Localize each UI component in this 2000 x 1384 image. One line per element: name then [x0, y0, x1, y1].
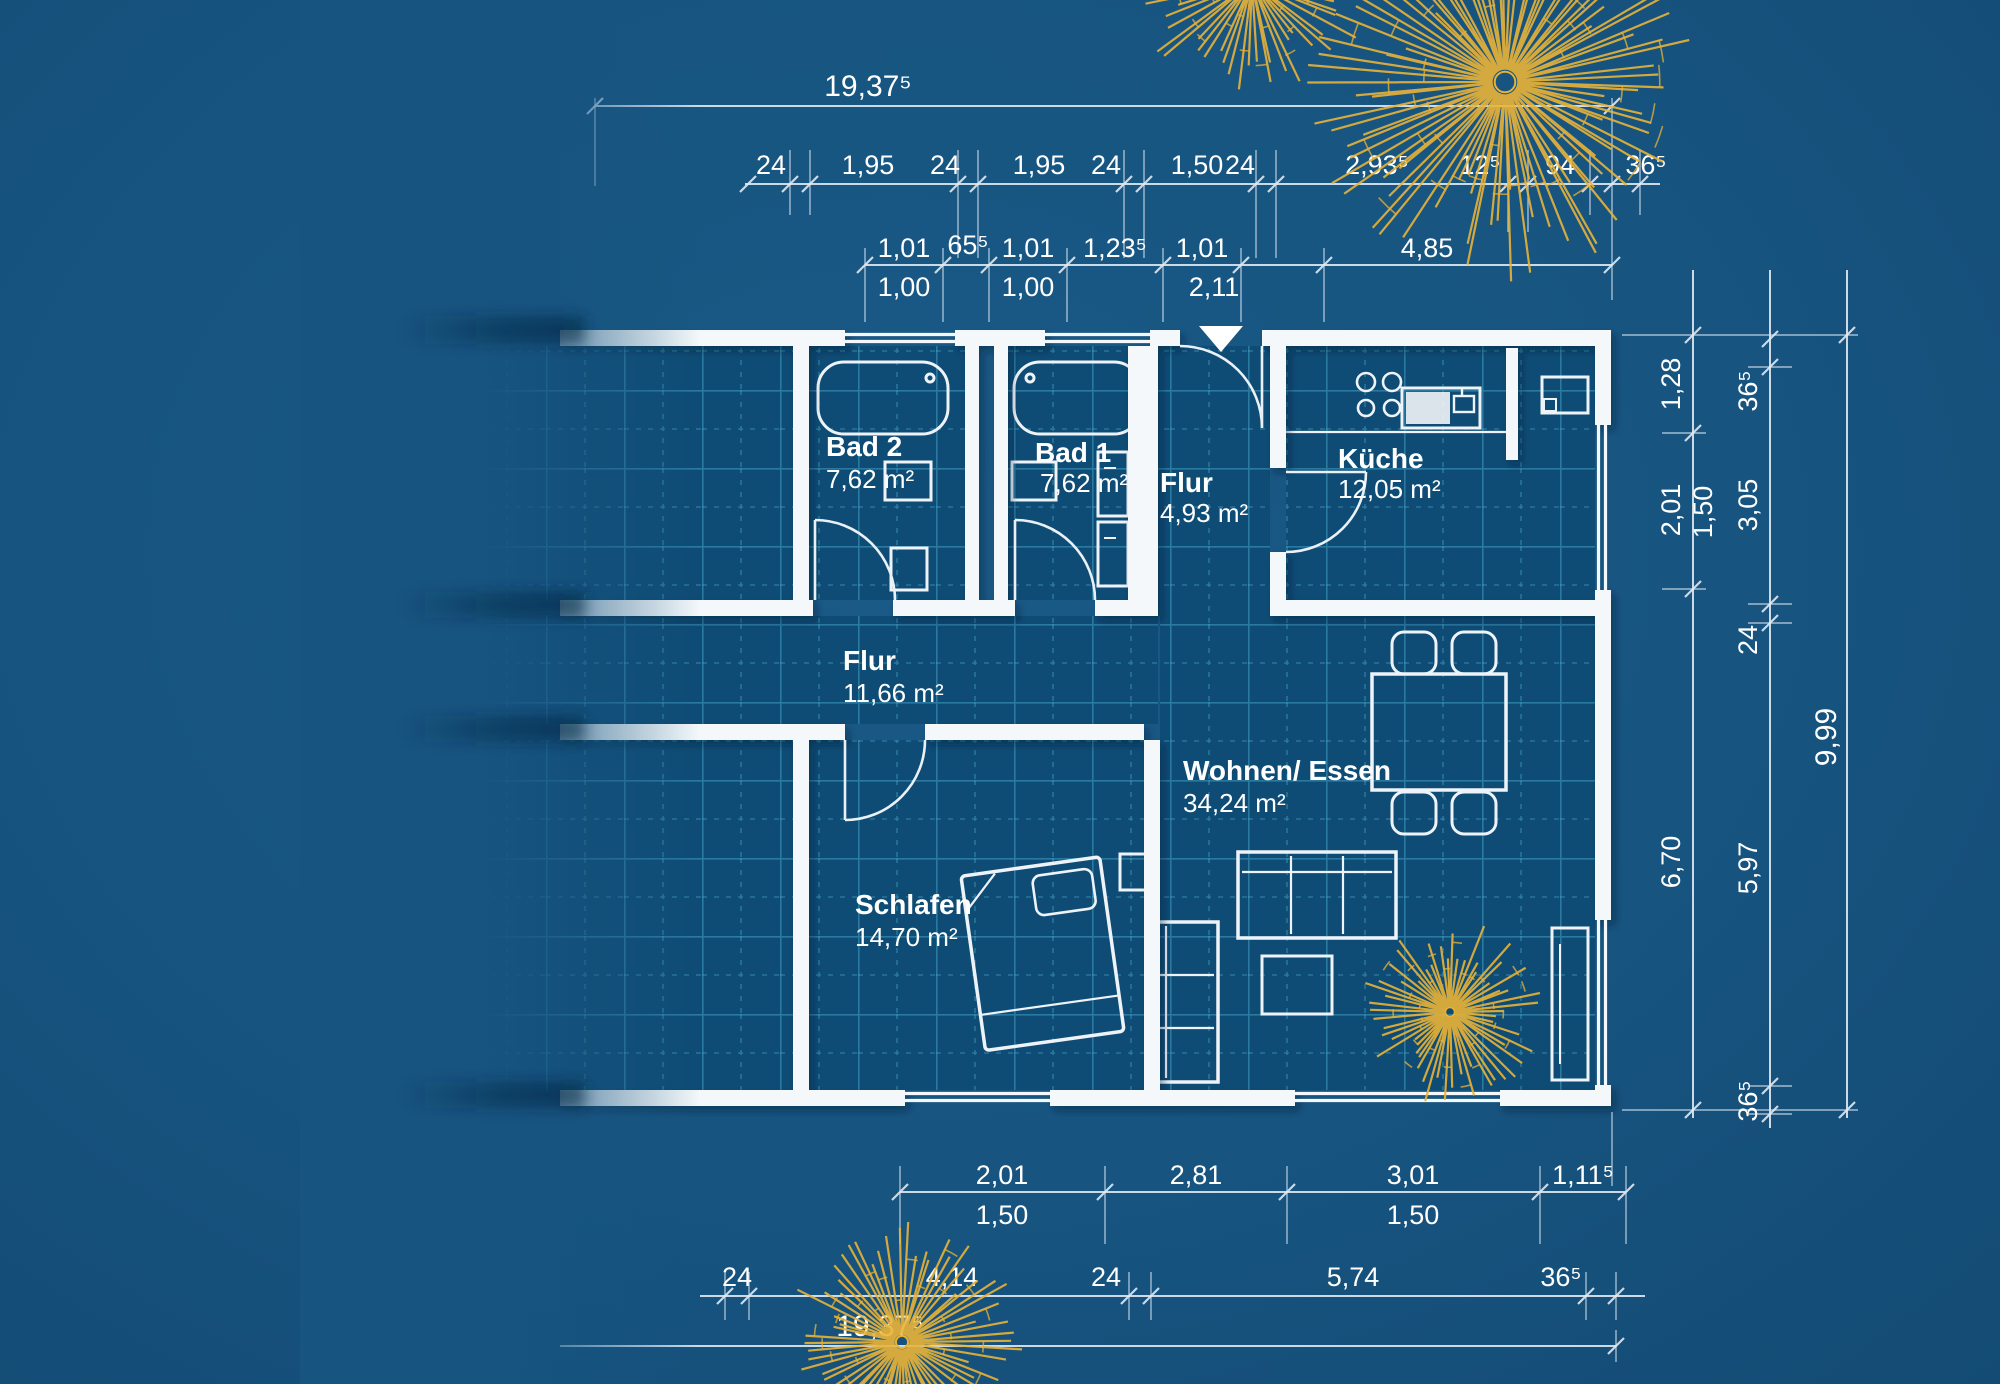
wall [1595, 330, 1611, 425]
window [1295, 1094, 1500, 1101]
wall [965, 346, 979, 616]
room-name: Bad 1 [1035, 437, 1111, 468]
dim-label: 24 [1091, 150, 1121, 180]
dim-label: 3,05 [1733, 479, 1763, 532]
dim-label: 2,01 [976, 1160, 1029, 1190]
dim-label: 1,50 [1171, 150, 1224, 180]
dim-label: 65⁵ [947, 230, 988, 260]
dim-label: 1,00 [1002, 272, 1055, 302]
room-name: Küche [1338, 443, 1424, 474]
dim-label: 1,50 [976, 1200, 1029, 1230]
dim-label: 5,97 [1733, 842, 1763, 895]
dim-label: 24 [1091, 1262, 1121, 1292]
wall [925, 724, 1144, 740]
dim-label: 36⁵ [1540, 1262, 1581, 1292]
window [1599, 425, 1606, 590]
dim-label: 1,01 [878, 233, 931, 263]
dim-label: 6,70 [1656, 836, 1686, 889]
dim-label: 24 [1225, 150, 1255, 180]
room-area: 7,62 m² [1040, 468, 1128, 498]
dim-label: 2,11 [1189, 272, 1240, 302]
dim-label: 24 [1733, 625, 1763, 655]
room-area: 14,70 m² [855, 922, 958, 952]
window [905, 1094, 1050, 1101]
dim-label: 1,95 [1013, 150, 1066, 180]
dim-label: 1,50 [1387, 1200, 1440, 1230]
dim-label: 2,01 [1656, 484, 1686, 537]
dim-label: 3,01 [1387, 1160, 1440, 1190]
wall [955, 330, 1045, 346]
dim-label: 19,37⁵ [824, 70, 912, 103]
dim-label: 4,85 [1401, 233, 1454, 263]
wall [1262, 330, 1611, 346]
wall [793, 740, 809, 1090]
dim-label: 5,74 [1327, 1262, 1380, 1292]
dim-label: 2,81 [1170, 1160, 1223, 1190]
tree-icon [1146, 0, 1356, 89]
dim-label: 24 [930, 150, 960, 180]
wall [1270, 600, 1595, 616]
dim-label: 1,28 [1656, 358, 1686, 411]
dim-label: 24 [722, 1262, 752, 1292]
dim-label: 1,01 [1002, 233, 1055, 263]
dim-label: 36⁵ [1733, 370, 1763, 411]
window [845, 335, 955, 342]
dim-label: 1,23⁵ [1083, 233, 1147, 263]
blueprint-canvas: Bad 2 7,62 m² Bad 1 7,62 m² Flur 4,93 m²… [0, 0, 2000, 1384]
room-name: Wohnen/ Essen [1183, 755, 1391, 786]
wall [1506, 348, 1518, 460]
window [1045, 335, 1150, 342]
room-name: Flur [1160, 467, 1213, 498]
wall [893, 600, 1015, 616]
dim-label: 1,00 [878, 272, 931, 302]
dim-label: 36⁵ [1733, 1080, 1763, 1121]
dim-label: 24 [756, 150, 786, 180]
room-area: 7,62 m² [826, 464, 914, 494]
dim-label: 1,11⁵ [1552, 1160, 1614, 1190]
wall [1595, 590, 1611, 920]
room-name: Flur [843, 645, 896, 676]
wall [994, 346, 1008, 616]
wall [1150, 330, 1180, 346]
dim-label: 1,01 [1176, 233, 1229, 263]
wall [793, 346, 809, 600]
room-area: 4,93 m² [1160, 498, 1248, 528]
room-name: Schlafen [855, 889, 972, 920]
room-name: Bad 2 [826, 431, 902, 462]
wall [1144, 740, 1160, 1090]
dim-label: 9,99 [1810, 708, 1843, 766]
dim-label: 1,50 [1688, 486, 1718, 539]
wall [1050, 1090, 1295, 1106]
wall [1270, 346, 1286, 468]
room-area: 34,24 m² [1183, 788, 1286, 818]
floorplan-svg: Bad 2 7,62 m² Bad 1 7,62 m² Flur 4,93 m²… [0, 0, 2000, 1384]
room-area: 11,66 m² [843, 678, 944, 708]
wall [1500, 1090, 1611, 1106]
room-area: 12,05 m² [1338, 474, 1441, 504]
window [1599, 920, 1606, 1085]
left-fade-overlay [300, 0, 700, 1384]
tree-icon [797, 1222, 1022, 1384]
dim-label: 1,95 [842, 150, 895, 180]
tree-icon [1307, 0, 1689, 281]
wall [1128, 346, 1158, 616]
wall [1095, 600, 1144, 616]
